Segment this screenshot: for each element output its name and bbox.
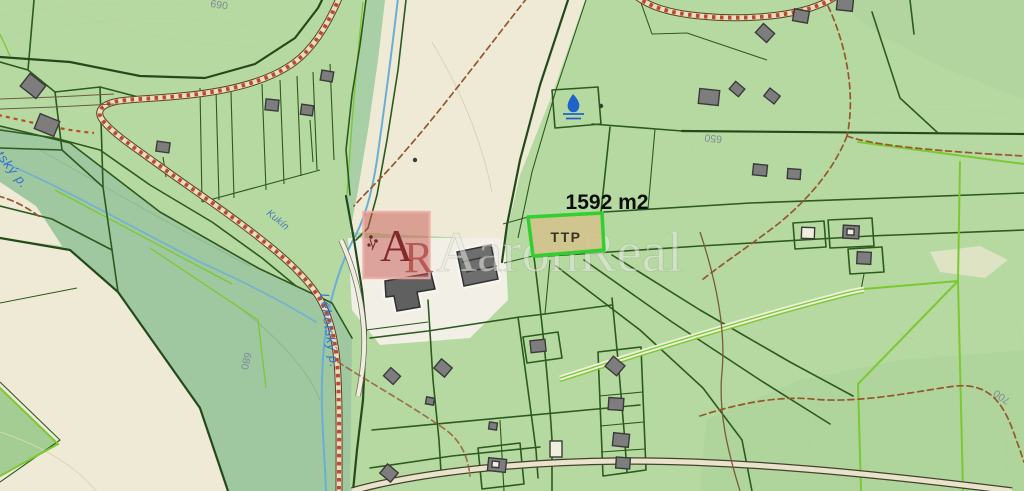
- map-canvas[interactable]: A R AaronReal TTP 1592 m2 Lehotský p. Le…: [0, 0, 1024, 491]
- map-viewport[interactable]: A R AaronReal TTP 1592 m2 Lehotský p. Le…: [0, 0, 1024, 491]
- highlighted-parcel[interactable]: TTP: [528, 213, 604, 256]
- watermark-letter-r: R: [404, 233, 434, 282]
- parcel-type-label: TTP: [551, 229, 582, 245]
- parcel-area-label: 1592 m2: [566, 191, 649, 214]
- watermark: A R AaronReal: [364, 212, 683, 284]
- contour-label-650: 650: [704, 131, 723, 145]
